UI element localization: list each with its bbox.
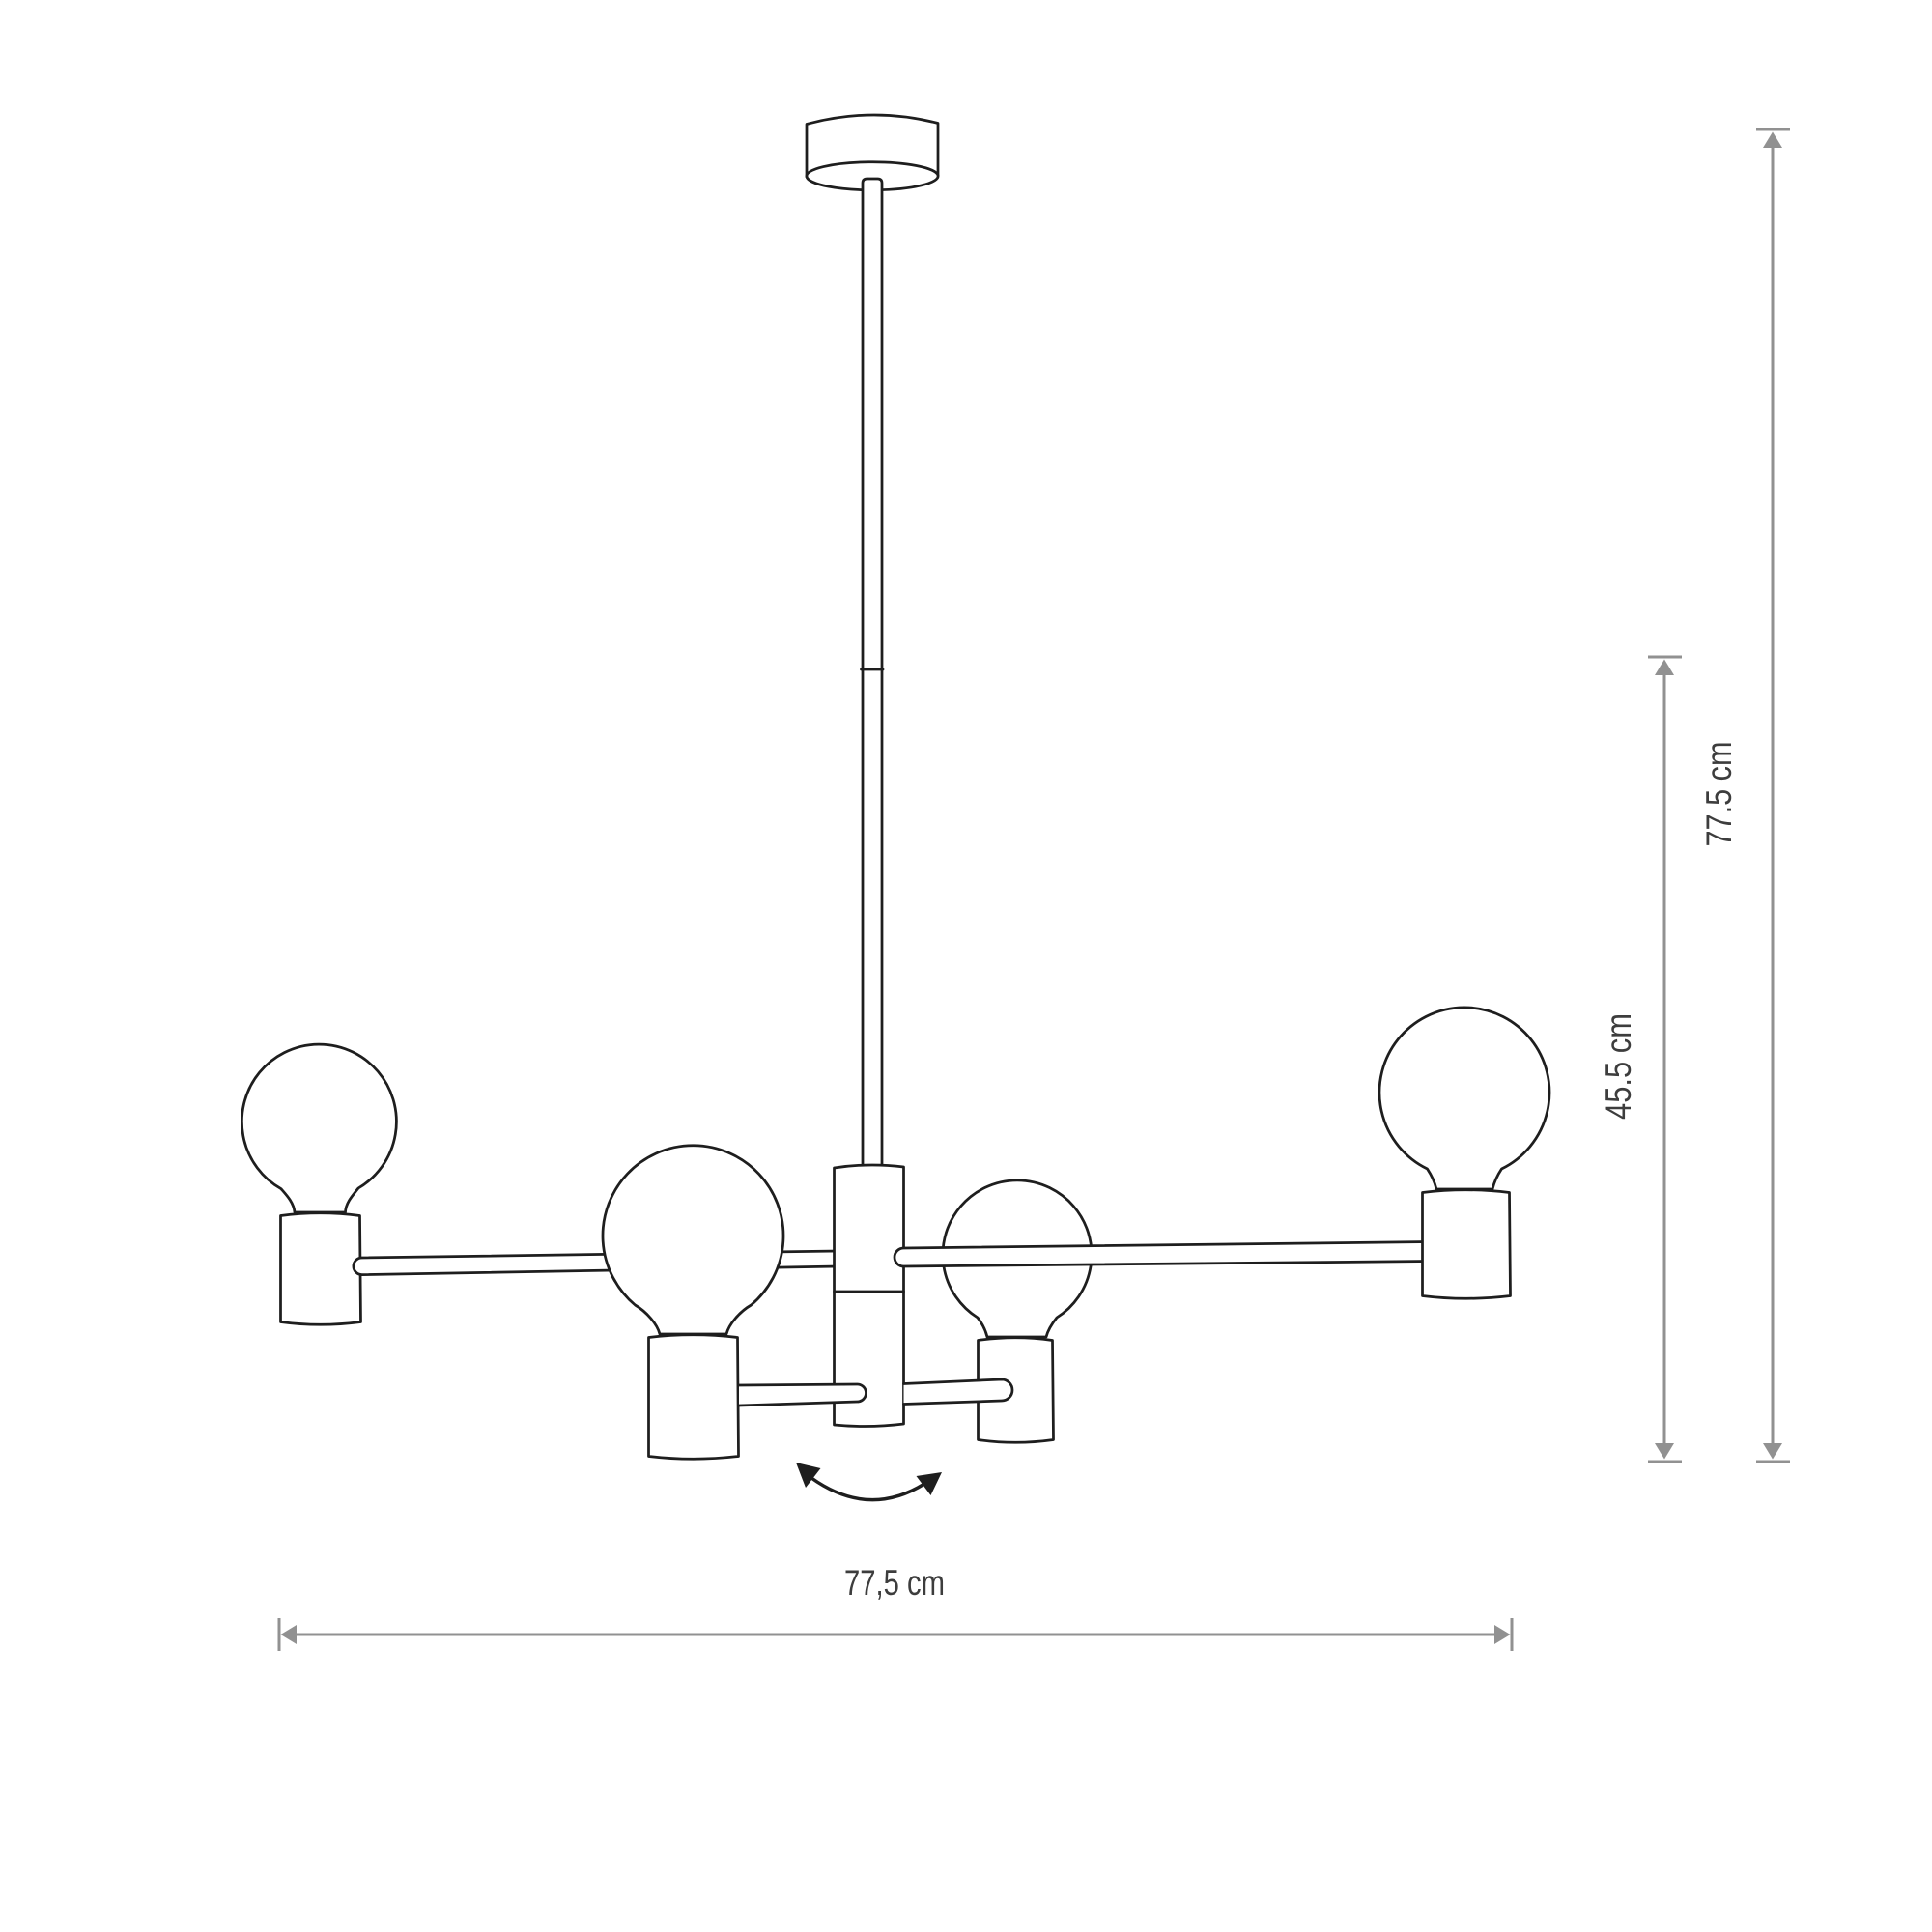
svg-text:45.5 cm: 45.5 cm [1599, 1013, 1638, 1120]
svg-text:77.5 cm: 77.5 cm [1699, 742, 1739, 847]
svg-text:77,5 cm: 77,5 cm [844, 1563, 945, 1603]
